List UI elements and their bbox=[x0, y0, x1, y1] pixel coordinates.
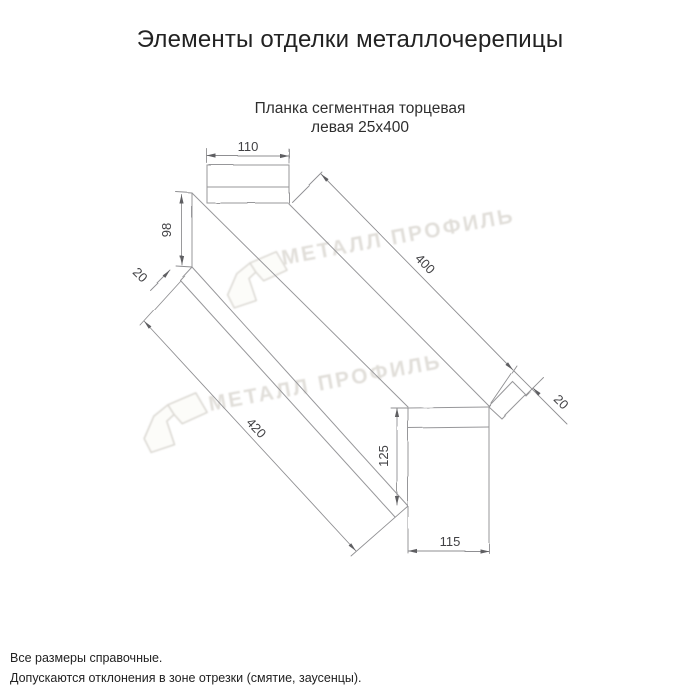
top-fold-edge bbox=[192, 193, 408, 407]
dim-label-125: 125 bbox=[376, 445, 391, 467]
drawing-subtitle: Планка сегментная торцевая левая 25х400 bbox=[160, 100, 560, 137]
dim-label-98: 98 bbox=[159, 223, 174, 237]
footer-note-2: Допускаются отклонения в зоне отрезки (с… bbox=[10, 668, 362, 688]
footer-notes: Все размеры справочные. Допускаются откл… bbox=[10, 648, 362, 688]
dim-label-20-right: 20 bbox=[551, 391, 572, 412]
dim-label-420: 420 bbox=[243, 415, 269, 441]
subtitle-line-1: Планка сегментная торцевая bbox=[160, 100, 560, 119]
dim-label-20-left: 20 bbox=[130, 264, 151, 285]
dimension-20-left bbox=[150, 270, 170, 290]
watermark-brand-text: МЕТАЛЛ ПРОФИЛЬ bbox=[207, 350, 444, 416]
bottom-fold-edge bbox=[192, 267, 408, 506]
left-end-cap-face bbox=[207, 165, 289, 203]
dim-label-115: 115 bbox=[440, 534, 461, 549]
right-end-cap-top bbox=[408, 407, 489, 408]
page-title: Элементы отделки металлочерепицы bbox=[0, 26, 700, 54]
left-hem-end-edge bbox=[180, 267, 192, 280]
right-hem-flap bbox=[489, 382, 526, 419]
watermark-upper: МЕТАЛЛ ПРОФИЛЬ bbox=[221, 204, 516, 308]
right-end-cap-fold bbox=[408, 427, 489, 428]
dimension-115 bbox=[408, 549, 489, 553]
footer-note-1: Все размеры справочные. bbox=[10, 648, 362, 668]
catalog-page: Элементы отделки металлочерепицы Планка … bbox=[0, 0, 700, 700]
dim-label-110: 110 bbox=[238, 139, 259, 154]
brand-logo-icon bbox=[138, 392, 213, 454]
dimension-labels: 110 98 20 400 20 420 125 115 bbox=[130, 139, 572, 549]
subtitle-line-2: левая 25х400 bbox=[160, 119, 560, 138]
dim-label-400: 400 bbox=[412, 251, 438, 277]
watermark-brand-text: МЕТАЛЛ ПРОФИЛЬ bbox=[280, 204, 517, 270]
dimension-98 bbox=[176, 192, 192, 267]
